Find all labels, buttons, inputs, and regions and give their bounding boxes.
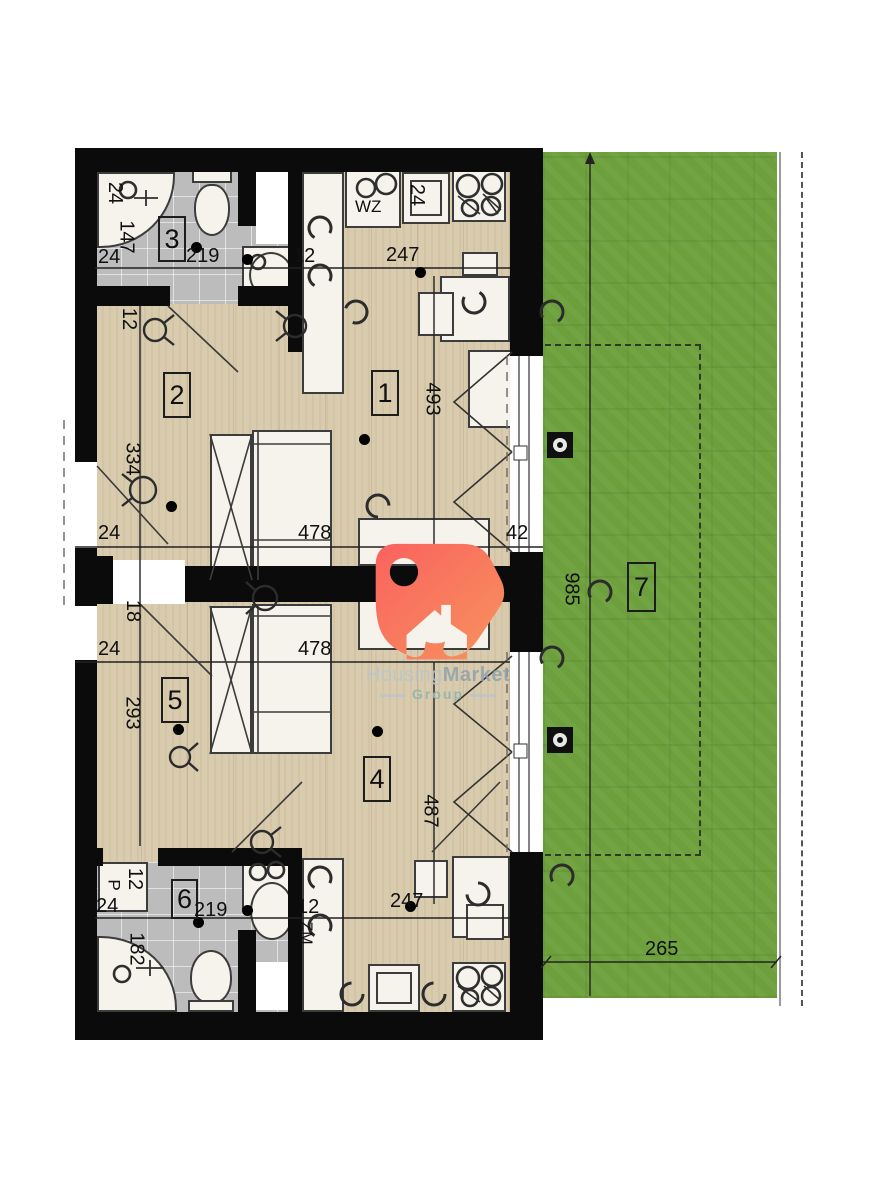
kitchen-bottom-basin-inner xyxy=(376,972,412,1004)
fridge-niche-top xyxy=(256,172,288,244)
side-table-top xyxy=(468,350,512,428)
dim-bath-bottom-door: 12 xyxy=(297,896,319,918)
room-label-4: 4 xyxy=(363,756,391,802)
wardrobe-bottom xyxy=(210,606,252,754)
wall-bath-top-block xyxy=(238,286,302,306)
dishwasher-label: ZM xyxy=(295,921,317,944)
dim-bedroom-bottom-height: 293 xyxy=(122,696,144,729)
wall-top xyxy=(75,148,543,172)
point-dot xyxy=(173,724,184,735)
logo-brand-light: Housing xyxy=(366,664,443,686)
dim-bedroom-bottom-left-wall: 24 xyxy=(98,638,120,660)
room-number: 4 xyxy=(369,764,384,795)
side-table-bottom xyxy=(466,904,504,940)
dim-shower-bottom-height: 182 xyxy=(126,932,148,965)
wall-bath-bottom-h1 xyxy=(75,848,103,866)
wall-bath-top-h xyxy=(75,286,170,306)
logo-brand-bold: Market xyxy=(443,664,510,686)
dim-bath-top-width: 219 xyxy=(186,245,219,267)
room-label-7: 7 xyxy=(627,562,656,612)
room-label-1: 1 xyxy=(371,370,399,416)
dim-kitchen-bottom-width: 247 xyxy=(390,890,423,912)
floor-plan-canvas: 3 2 1 5 4 6 7 24 147 24 219 12 12 24 247… xyxy=(0,0,883,1200)
wall-right-bottom xyxy=(510,852,543,1040)
dim-bedroom-top-left-wall: 24 xyxy=(98,522,120,544)
dim-living-bottom-height: 487 xyxy=(420,794,442,827)
garden-spotlight-2 xyxy=(547,727,573,753)
logo-subtitle: Group xyxy=(348,686,528,702)
dim-bath-bottom-width: 219 xyxy=(194,899,227,921)
desk-top-shelf xyxy=(462,252,498,276)
dim-window-jamb: 42 xyxy=(506,522,528,544)
wall-bath-bottom-v2 xyxy=(238,930,256,1014)
room-number: 7 xyxy=(634,572,649,603)
desk-top-drawer xyxy=(418,292,454,336)
entry-door-opening-top xyxy=(75,462,97,548)
dim-garden-depth: 985 xyxy=(561,572,583,605)
room-number: 2 xyxy=(169,380,184,411)
stove-bottom xyxy=(452,962,506,1012)
dim-entry-top-offset: 334 xyxy=(122,442,144,475)
dim-hall-top-wall: 12 xyxy=(118,308,140,330)
room-label-3: 3 xyxy=(158,216,186,262)
dim-shower-top: 24 xyxy=(104,182,126,204)
dim-bedroom-top-width: 478 xyxy=(298,522,331,544)
plot-boundary-dashed xyxy=(801,152,803,1006)
bed-top xyxy=(252,430,332,580)
middle-door-opening xyxy=(113,560,185,604)
point-dot xyxy=(415,267,426,278)
room-label-2: 2 xyxy=(163,372,191,418)
wall-right-top xyxy=(510,148,543,356)
garden-spotlight-1 xyxy=(547,432,573,458)
toilet-top-bowl xyxy=(194,184,230,236)
dim-kitchen-top-width: 247 xyxy=(386,244,419,266)
wardrobe-top xyxy=(210,434,252,580)
dim-middle-door: 18 xyxy=(122,600,144,622)
wall-bath-top-v1 xyxy=(238,148,256,226)
point-dot xyxy=(359,434,370,445)
wall-middle-left-block xyxy=(75,556,113,604)
kitchen-top-sink-label: WZ xyxy=(355,196,381,218)
room-number: 5 xyxy=(167,685,182,716)
room-number: 1 xyxy=(377,378,392,409)
dim-living-top-height: 493 xyxy=(422,382,444,415)
dim-garden-width: 265 xyxy=(645,938,678,960)
room-number: 3 xyxy=(164,224,179,255)
stove-top xyxy=(452,170,506,222)
housingmarket-logo: HousingMarket Group xyxy=(368,540,508,704)
entry-door-opening-bottom xyxy=(75,606,97,660)
logo-tag-shape xyxy=(376,544,504,660)
plot-boundary-line xyxy=(779,152,781,1006)
point-dot xyxy=(242,905,253,916)
dim-bedroom-bottom-width: 478 xyxy=(298,638,331,660)
toilet-bottom-bowl xyxy=(190,950,232,1004)
bed-bottom xyxy=(252,604,332,754)
dim-bath-bottom-left-wall: 24 xyxy=(96,895,118,917)
logo-brand-text: HousingMarket xyxy=(348,664,528,687)
kitchen-top-tall-cabinet xyxy=(302,172,344,394)
point-dot xyxy=(372,726,383,737)
point-dot xyxy=(166,501,177,512)
dim-washer-width: 12 xyxy=(124,868,146,890)
room-label-5: 5 xyxy=(161,677,189,723)
wall-bath-bottom-h2 xyxy=(158,848,240,866)
toilet-bottom-tank xyxy=(188,1000,234,1012)
room-number: 6 xyxy=(177,884,192,915)
washing-machine-label: P xyxy=(103,879,125,890)
logo-tag-icon xyxy=(368,540,508,662)
point-dot xyxy=(242,254,253,265)
fridge-niche-bottom xyxy=(256,962,288,1010)
dim-bath-top-left-wall: 24 xyxy=(98,246,120,268)
wall-bottom xyxy=(75,1012,543,1040)
dim-bath-top-door: 12 xyxy=(293,245,315,267)
logo-subtitle-text: Group xyxy=(412,686,464,702)
dim-kitchen-top-counter: 24 xyxy=(406,184,428,206)
